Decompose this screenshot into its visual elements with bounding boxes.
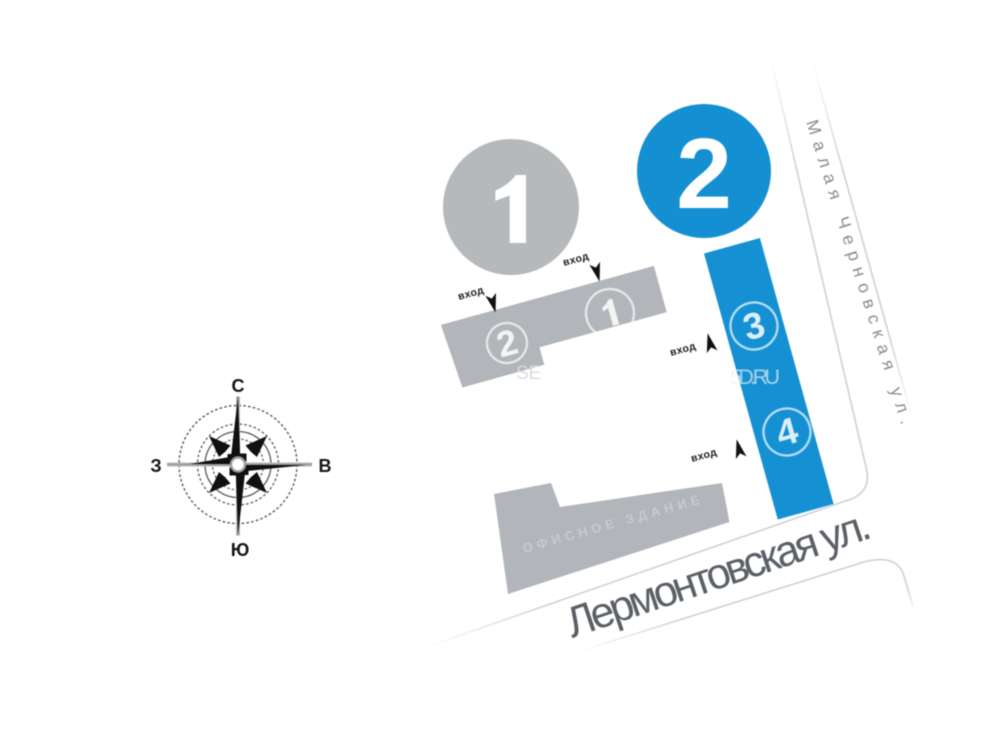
svg-text:SE: SE [516,363,541,384]
svg-text:С: С [232,376,245,396]
svg-text:Ю: Ю [231,540,250,560]
svg-text:5D.RU: 5D.RU [730,365,780,389]
svg-text:З: З [150,456,161,476]
svg-text:2: 2 [676,118,732,230]
svg-text:В: В [319,456,332,476]
